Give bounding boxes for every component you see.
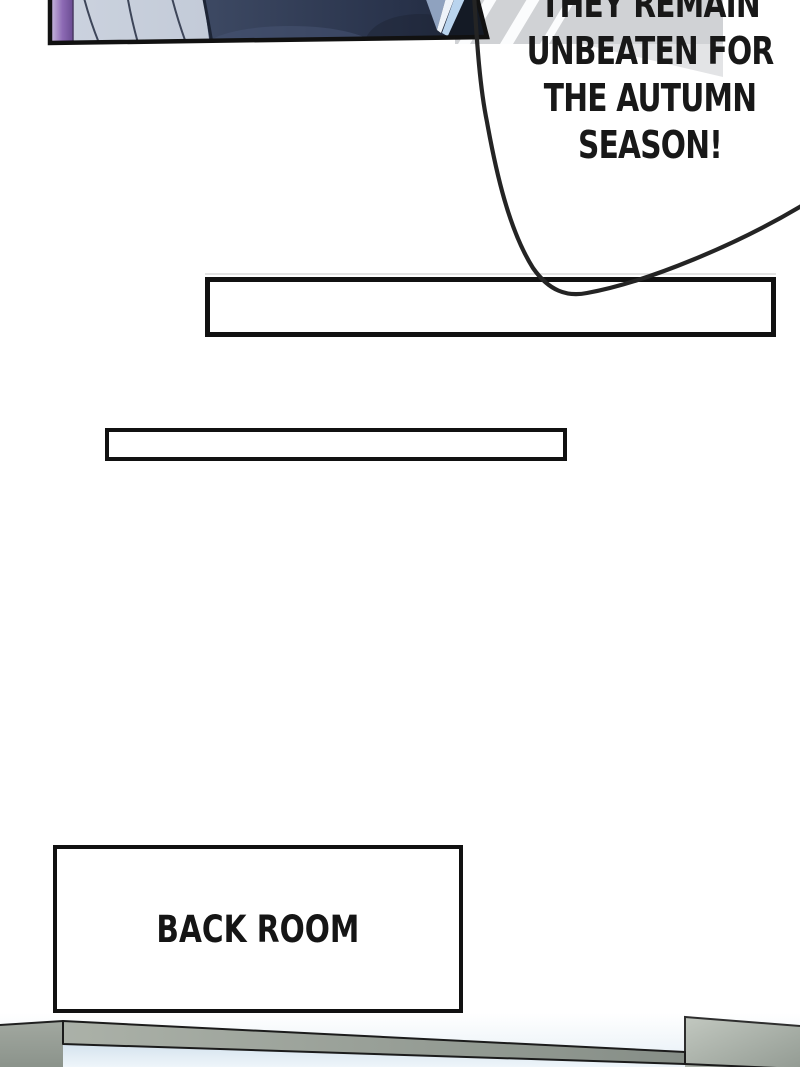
counter-left-column — [0, 1021, 63, 1067]
suit-jacket — [203, 0, 492, 46]
panel-border — [50, 0, 487, 43]
empty-caption-box-1 — [205, 277, 776, 337]
speech-line: THEY REMAIN — [525, 0, 775, 28]
tie-stripe — [442, 0, 467, 37]
speech-line: SEASON! — [525, 122, 775, 169]
top-panel — [50, 0, 492, 74]
comic-page: THEY REMAIN UNBEATEN FOR THE AUTUMN SEAS… — [0, 0, 800, 1067]
purple-hair-strand — [52, 0, 73, 46]
speech-line: UNBEATEN FOR — [525, 28, 775, 75]
empty-caption-box-2 — [105, 428, 567, 461]
speech-bubble-text: THEY REMAIN UNBEATEN FOR THE AUTUMN SEAS… — [525, 0, 775, 169]
back-room-label: BACK ROOM — [156, 908, 359, 951]
back-room-sign: BACK ROOM — [53, 845, 463, 1013]
speech-line: THE AUTUMN — [525, 75, 775, 122]
collar — [424, 0, 447, 30]
suit-fabric — [50, 0, 490, 46]
counter-scene — [0, 1013, 800, 1067]
